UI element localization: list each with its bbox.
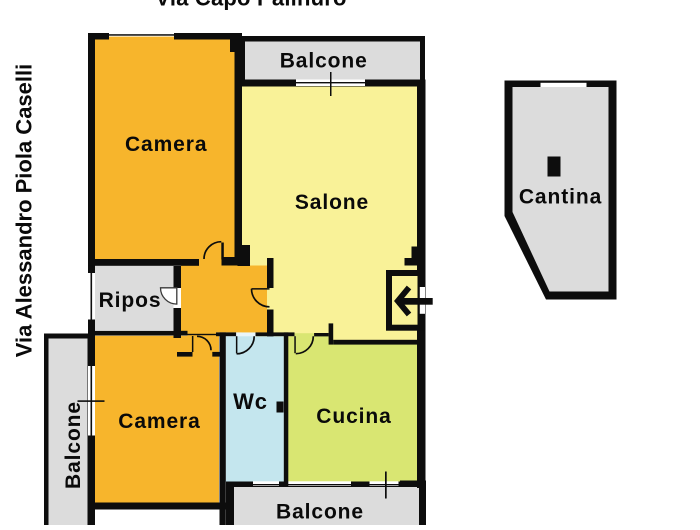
- svg-text:Via Capo Palinuro: Via Capo Palinuro: [155, 0, 346, 11]
- svg-text:Cantina: Cantina: [519, 186, 602, 209]
- svg-text:Balcone: Balcone: [62, 401, 85, 489]
- svg-text:Cucina: Cucina: [316, 405, 391, 428]
- svg-text:Wc: Wc: [233, 389, 268, 414]
- svg-text:Balcone: Balcone: [276, 501, 364, 524]
- svg-text:Camera: Camera: [125, 133, 207, 156]
- svg-text:Balcone: Balcone: [280, 50, 368, 73]
- svg-text:Salone: Salone: [295, 191, 369, 214]
- svg-text:Via Alessandro Piola Caselli: Via Alessandro Piola Caselli: [12, 64, 37, 357]
- svg-text:Ripos: Ripos: [99, 289, 162, 312]
- svg-text:Camera: Camera: [118, 410, 200, 433]
